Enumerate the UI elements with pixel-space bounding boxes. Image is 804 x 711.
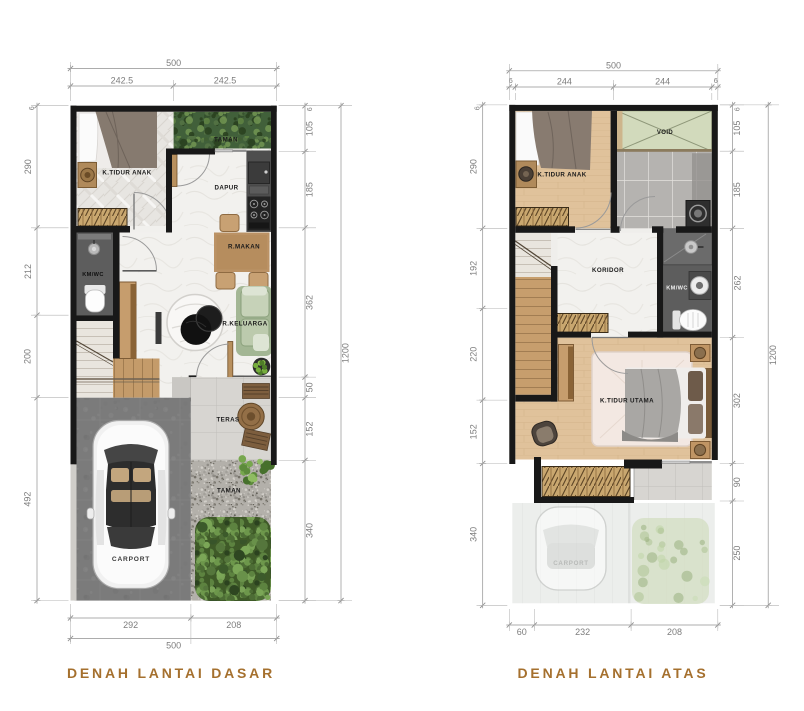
svg-text:KM/WC: KM/WC <box>82 272 104 278</box>
svg-text:200: 200 <box>23 349 33 364</box>
svg-text:TAMAN: TAMAN <box>217 488 241 495</box>
svg-text:DENAH LANTAI ATAS: DENAH LANTAI ATAS <box>518 665 709 681</box>
svg-text:152: 152 <box>305 422 315 437</box>
svg-text:340: 340 <box>305 523 315 538</box>
svg-text:250: 250 <box>732 546 742 561</box>
svg-text:105: 105 <box>305 121 315 136</box>
svg-text:TERAS: TERAS <box>217 417 240 424</box>
svg-text:1200: 1200 <box>768 345 778 365</box>
svg-text:185: 185 <box>732 182 742 197</box>
svg-text:208: 208 <box>667 627 682 637</box>
svg-text:1200: 1200 <box>341 343 351 363</box>
svg-text:185: 185 <box>305 182 315 197</box>
svg-text:CARPORT: CARPORT <box>112 556 150 563</box>
svg-text:DENAH LANTAI DASAR: DENAH LANTAI DASAR <box>67 665 275 681</box>
svg-text:R.MAKAN: R.MAKAN <box>228 244 260 251</box>
svg-text:TAMAN: TAMAN <box>214 137 238 144</box>
svg-text:292: 292 <box>123 620 138 630</box>
svg-text:CARPORT: CARPORT <box>553 560 589 567</box>
svg-text:90: 90 <box>732 477 742 487</box>
svg-text:6: 6 <box>473 106 482 110</box>
svg-text:R.KELUARGA: R.KELUARGA <box>222 321 267 328</box>
svg-text:262: 262 <box>732 275 742 290</box>
svg-text:KORIDOR: KORIDOR <box>592 267 624 274</box>
svg-text:340: 340 <box>469 527 479 542</box>
svg-text:152: 152 <box>469 424 479 439</box>
svg-text:VOID: VOID <box>657 130 674 136</box>
svg-text:232: 232 <box>575 627 590 637</box>
svg-text:244: 244 <box>655 77 670 87</box>
svg-text:362: 362 <box>305 295 315 310</box>
svg-text:302: 302 <box>732 393 742 408</box>
svg-text:60: 60 <box>517 627 527 637</box>
svg-text:492: 492 <box>23 492 33 507</box>
svg-text:K.TIDUR ANAK: K.TIDUR ANAK <box>102 170 151 177</box>
svg-text:500: 500 <box>166 58 181 68</box>
svg-text:6: 6 <box>305 107 314 111</box>
svg-text:244: 244 <box>557 77 572 87</box>
svg-text:290: 290 <box>469 159 479 174</box>
svg-text:242.5: 242.5 <box>214 76 237 86</box>
svg-text:DAPUR: DAPUR <box>214 185 238 192</box>
svg-text:500: 500 <box>166 641 181 651</box>
svg-text:242.5: 242.5 <box>111 76 134 86</box>
svg-text:K.TIDUR UTAMA: K.TIDUR UTAMA <box>600 398 654 405</box>
svg-text:208: 208 <box>226 620 241 630</box>
svg-text:6: 6 <box>27 106 36 110</box>
svg-text:500: 500 <box>606 60 621 70</box>
svg-text:192: 192 <box>469 261 479 276</box>
svg-text:KM/WC: KM/WC <box>666 286 688 292</box>
svg-text:290: 290 <box>23 159 33 174</box>
svg-text:220: 220 <box>468 347 478 362</box>
svg-text:6: 6 <box>733 107 742 111</box>
svg-text:105: 105 <box>732 121 742 136</box>
svg-text:K.TIDUR ANAK: K.TIDUR ANAK <box>537 172 586 179</box>
svg-text:212: 212 <box>23 264 33 279</box>
svg-text:50: 50 <box>305 382 315 392</box>
